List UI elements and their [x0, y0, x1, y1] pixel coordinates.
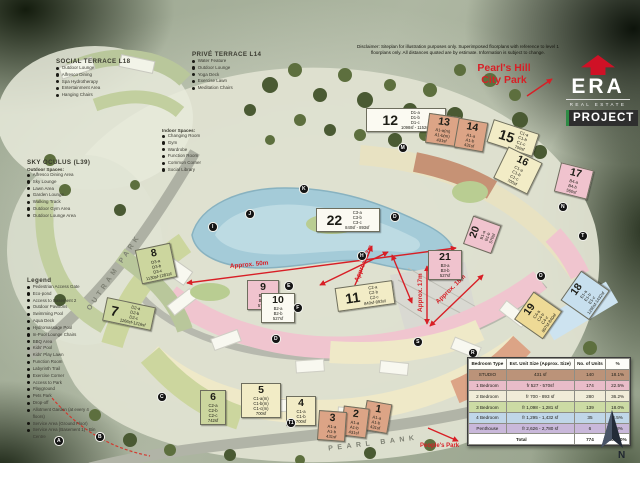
- prive-terrace-title: PRIVÉ TERRACE L14: [192, 51, 278, 58]
- col-percent: %: [606, 359, 630, 370]
- legend-item: Playground: [27, 386, 101, 393]
- amenity-item: Outdoor Gym Area: [27, 206, 103, 213]
- legend-item: Drop-off: [27, 400, 101, 407]
- legend-item: Service Area (Basement 1) - Bin Centre: [27, 427, 101, 441]
- peoples-park-label: People's Park: [420, 443, 459, 449]
- era-real-estate-label: REAL ESTATE: [566, 99, 630, 107]
- indoor-spaces-panel: Indoor Spaces: Changing RoomGymWardrobeF…: [162, 127, 234, 174]
- sky-oculus-panel: SKY OCULUS (L39) Outdoor Spaces: Alfresc…: [27, 159, 103, 219]
- legend-item: Service Area (Ground Floor): [27, 421, 101, 428]
- legend-item: Allotment Garden (at every 4 floors): [27, 407, 101, 421]
- distance-label: Approx. 17m: [417, 273, 424, 312]
- map-badge-N: N: [558, 202, 568, 212]
- amenity-item: Hanging Chairs: [56, 92, 136, 99]
- prive-terrace-list: Water FeatureOutdoor LoungeYoga DeckExer…: [192, 58, 278, 92]
- amenity-item: Function Room: [162, 153, 234, 160]
- col-no-of-units: No. of Units: [574, 359, 606, 370]
- amenity-item: Lawn Area: [27, 186, 103, 193]
- north-compass: N: [596, 408, 630, 460]
- map-badge-I: I: [208, 222, 218, 232]
- building-block-8: 8D3-a D3-b D3-c 1130sf-1281sf: [135, 243, 177, 284]
- distance-arrow: [187, 248, 456, 283]
- legend-item: Eco-pond: [27, 291, 101, 298]
- map-badge-C: C: [157, 392, 167, 402]
- social-terrace-panel: SOCIAL TERRACE L18 Outdoor LoungeAlfresc…: [56, 58, 136, 99]
- era-wordmark: ERA: [566, 76, 630, 97]
- legend-item: Function Room: [27, 359, 101, 366]
- map-badge-B: B: [95, 432, 105, 442]
- building-block-5: 5C1-a(m) C1-b(m) C1-c(m) 700sf: [241, 383, 281, 418]
- prive-terrace-panel: PRIVÉ TERRACE L14 Water FeatureOutdoor L…: [192, 51, 278, 92]
- amenity-item: Gym: [162, 140, 234, 147]
- map-badge-J: J: [245, 209, 255, 219]
- building-block-22: 22C3-a C3-b C3-c 840sf - 893sf: [316, 208, 380, 232]
- amenity-item: Alfresco Dining Area: [27, 172, 103, 179]
- map-badge-E: E: [284, 281, 294, 291]
- map-badge-D: D: [390, 212, 400, 222]
- legend-item: In-Pool Lounge Chairs: [27, 332, 101, 339]
- siteplan-stage: Approx. 50mApprox. 12mApprox. 17mApprox.…: [0, 0, 640, 480]
- legend-item: Kids' Pool: [27, 345, 101, 352]
- map-badge-H: H: [357, 251, 367, 261]
- distance-arrow: [392, 255, 412, 303]
- unit-mix-header-row: Bedroom Type Est. Unit Size (Approx. Siz…: [469, 359, 630, 370]
- distance-arrow: [428, 428, 458, 441]
- social-terrace-list: Outdoor LoungeAlfresco DiningSpa Hydroth…: [56, 65, 136, 99]
- building-block-21: 21B3-a B3-b 527sf: [428, 250, 462, 280]
- map-badge-S: S: [413, 337, 423, 347]
- amenity-item: Sky Lounge: [27, 179, 103, 186]
- map-badge-A: A: [54, 436, 64, 446]
- era-house-icon: [581, 55, 615, 75]
- amenity-item: Outdoor Lounge: [192, 65, 278, 72]
- legend-item: BBQ Area: [27, 339, 101, 346]
- building-block-14: 14A1-a A1-b 431sf: [454, 118, 489, 152]
- social-terrace-title: SOCIAL TERRACE L18: [56, 58, 136, 65]
- amenity-item: Wardrobe: [162, 147, 234, 154]
- map-badge-D: D: [271, 334, 281, 344]
- map-badge-K: K: [299, 184, 309, 194]
- amenity-item: Yoga Deck: [192, 72, 278, 79]
- compass-n-label: N: [618, 450, 625, 460]
- building-block-10: 10B2-a B2-b 527sf: [261, 293, 295, 323]
- col-bedroom-type: Bedroom Type: [469, 359, 507, 370]
- legend-title: Legend: [27, 277, 101, 284]
- map-badge-M: M: [398, 143, 408, 153]
- total-label: Total: [469, 434, 575, 445]
- disclaimer-text: Disclaimer: Siteplan for illustration pu…: [352, 44, 564, 56]
- bottom-margin: [0, 463, 640, 480]
- legend-item: Pets Park: [27, 393, 101, 400]
- unit-mix-row: 2 Bedroomfr 700 - 893 sf28036.2%: [469, 391, 630, 402]
- sky-oculus-list: Alfresco Dining AreaSky LoungeLawn AreaG…: [27, 172, 103, 219]
- era-project-label: PROJECT: [566, 110, 638, 126]
- amenity-item: Walking Track: [27, 199, 103, 206]
- amenity-item: Exercise Lawn: [192, 78, 278, 85]
- legend-item: Aqua Deck: [27, 318, 101, 325]
- amenity-item: Changing Room: [162, 133, 234, 140]
- amenity-item: Garden Lounge: [27, 192, 103, 199]
- amenity-item: Outdoor Lounge: [56, 65, 136, 72]
- amenity-item: Common Corner: [162, 160, 234, 167]
- amenity-item: Alfresco Dining: [56, 72, 136, 79]
- amenity-item: Water Feature: [192, 58, 278, 65]
- building-block-6: 6C2-a C2-b C2-c 742sf: [200, 390, 226, 425]
- amenity-item: Entertainment Area: [56, 85, 136, 92]
- amenity-item: Meditation Chairs: [192, 85, 278, 92]
- map-badge-F: F: [293, 303, 303, 313]
- col-unit-size: Est. Unit Size (Approx. Size): [506, 359, 574, 370]
- distance-label: Approx. 50m: [230, 260, 269, 270]
- pearls-hill-city-park-label: Pearl's Hill City Park: [458, 62, 550, 86]
- legend-item: Pedestrian Access Gate: [27, 284, 101, 291]
- building-block-3: 3A1-a A1-b 431sf: [317, 410, 347, 441]
- unit-mix-row: 1 Bedroomfr 527 - 570sf17422.5%: [469, 380, 630, 391]
- legend-item: Exercise Corner: [27, 373, 101, 380]
- sky-oculus-title: SKY OCULUS (L39): [27, 159, 103, 166]
- amenity-item: Outdoor Lounge Area: [27, 213, 103, 220]
- map-badge-T: T: [578, 231, 588, 241]
- amenity-item: Social Library: [162, 167, 234, 174]
- era-logo: ERA REAL ESTATE PROJECT: [566, 55, 630, 126]
- legend-item: Access to Park: [27, 380, 101, 387]
- unit-mix-row: STUDIO431 sf14018.1%: [469, 369, 630, 380]
- map-badge-T1: T1: [286, 418, 296, 428]
- legend-item: Kids' Play Lawn: [27, 352, 101, 359]
- map-badge-O: O: [536, 271, 546, 281]
- legend-item: Hydromassage Pool: [27, 325, 101, 332]
- legend-item: Labyrinth Trail: [27, 366, 101, 373]
- indoor-spaces-list: Changing RoomGymWardrobeFunction RoomCom…: [162, 133, 234, 174]
- amenity-item: Spa Hydrotherapy: [56, 79, 136, 86]
- legend-item: Swimming Pool: [27, 311, 101, 318]
